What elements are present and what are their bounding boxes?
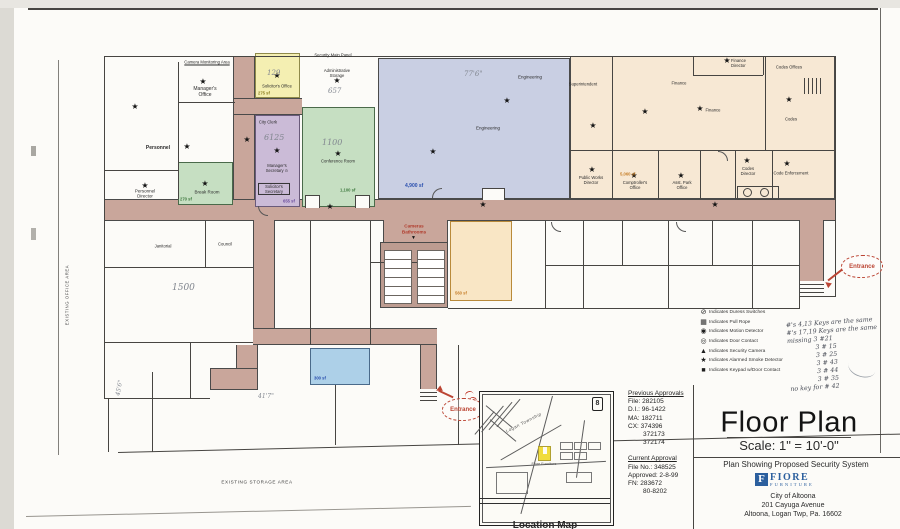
approval-line: CX: 374396 bbox=[628, 423, 684, 431]
pull-rope-icon: ▦ bbox=[698, 319, 709, 326]
area-label: 1,100 sf bbox=[340, 188, 355, 193]
area-label: 275 sf bbox=[258, 91, 270, 96]
wall bbox=[104, 170, 178, 171]
area-label: 5,060 sf bbox=[620, 172, 635, 177]
map-block bbox=[574, 452, 587, 460]
approval-line: File: 282105 bbox=[628, 398, 684, 406]
room-label-conference: Conference Room bbox=[318, 158, 358, 163]
smoke-detector-star-icon: ★ bbox=[785, 96, 792, 104]
corridor bbox=[253, 220, 275, 345]
wall bbox=[178, 62, 179, 199]
wall bbox=[152, 372, 153, 452]
scan-margin-top bbox=[0, 0, 900, 8]
smoke-detector-star-icon: ★ bbox=[641, 108, 648, 116]
corridor bbox=[236, 345, 258, 370]
room-label-managers-office: Manager's Office bbox=[189, 86, 221, 98]
wall bbox=[335, 385, 336, 445]
location-map-caption: Location Map bbox=[513, 520, 577, 529]
scan-smudge bbox=[31, 228, 36, 240]
approvals-block: Previous Approvals File: 282105 D.I.: 96… bbox=[628, 388, 684, 496]
smoke-detector-star-icon: ★ bbox=[677, 172, 684, 180]
wall bbox=[799, 296, 836, 297]
smoke-detector-star-icon: ★ bbox=[199, 78, 206, 86]
existing-office-label: EXISTING OFFICE AREA bbox=[64, 265, 69, 325]
map-block bbox=[496, 472, 528, 494]
room-label-solicitors-secretary: Solicitor's Secretary bbox=[258, 183, 290, 195]
room-label-personnel: Personnel bbox=[146, 145, 170, 151]
wall bbox=[190, 342, 191, 398]
room-label-admin-storage: Administrative Storage bbox=[317, 68, 357, 78]
address-line: 201 Cayuga Avenue bbox=[762, 502, 825, 510]
entrance-steps bbox=[800, 281, 824, 296]
route-badge: 8 bbox=[592, 397, 603, 411]
wall bbox=[765, 56, 766, 150]
wall bbox=[835, 56, 836, 297]
map-highway bbox=[480, 503, 610, 504]
legend-label: Indicates Door Contact bbox=[709, 339, 758, 344]
wall bbox=[458, 345, 459, 445]
door-arc bbox=[551, 222, 561, 232]
handwritten-key-notes: #'s 4,13 Keys are the same #'s 17,19 Key… bbox=[786, 314, 900, 394]
room-fill-finance-wing bbox=[570, 56, 835, 199]
handwritten-note: 41'7" bbox=[258, 394, 274, 400]
approval-line: Approved: 2-8-99 bbox=[628, 472, 684, 480]
room-label-public-works-director: Public Works Director bbox=[577, 175, 605, 185]
smoke-detector-star-icon: ★ bbox=[183, 143, 190, 151]
smoke-detector-star-icon: ★ bbox=[698, 357, 709, 364]
smoke-detector-star-icon: ★ bbox=[783, 160, 790, 168]
room-label-finance: Finance bbox=[672, 80, 687, 85]
down-arrow-icon: ▼ bbox=[411, 235, 416, 241]
smoke-detector-star-icon: ★ bbox=[326, 203, 333, 211]
area-label: 655 sf bbox=[283, 199, 295, 204]
legend-label: Indicates Motion Detector bbox=[709, 329, 763, 334]
scan-smudge bbox=[31, 146, 36, 156]
duress-switch-icon: ⊘ bbox=[698, 309, 709, 316]
legend-item: ⊘Indicates Duress Switches bbox=[698, 308, 828, 318]
drawing-subtitle: Plan Showing Proposed Security System bbox=[723, 460, 868, 470]
map-block bbox=[566, 472, 592, 483]
map-marker-notch bbox=[543, 447, 547, 454]
keypad-icon: ■ bbox=[698, 367, 709, 374]
address-line: Altoona, Logan Twp, Pa. 16602 bbox=[744, 511, 842, 519]
legend-label: Indicates Pull Rope bbox=[709, 320, 750, 325]
smoke-detector-star-icon: ★ bbox=[503, 97, 510, 105]
handwritten-note: 77'6" bbox=[464, 71, 483, 78]
entrance-bubble: Entrance bbox=[841, 255, 883, 278]
area-label: 300 sf bbox=[314, 376, 326, 381]
door-contact-icon: ◎ bbox=[698, 338, 709, 345]
approval-line: MA: 182711 bbox=[628, 415, 684, 423]
wall bbox=[178, 102, 235, 103]
wall bbox=[763, 56, 764, 75]
map-marker-label: Fiore Furniture bbox=[528, 462, 560, 470]
room-fill-560sf bbox=[450, 221, 512, 301]
entrance-label: Entrance bbox=[849, 264, 875, 270]
smoke-detector-star-icon: ★ bbox=[723, 57, 730, 65]
township-label: Logan Township bbox=[505, 411, 542, 433]
entrance-bubble: Entrance bbox=[442, 398, 484, 421]
bathroom-stalls bbox=[384, 250, 412, 304]
map-marker bbox=[538, 446, 551, 461]
map-block bbox=[574, 442, 587, 450]
room-label-finance: Finance bbox=[706, 107, 721, 112]
logo-word: FURNITURE bbox=[770, 482, 814, 487]
room-label-janitorial: Janitorial bbox=[155, 243, 172, 248]
door-arc bbox=[676, 222, 686, 232]
room-label-finance-director: Finance Director bbox=[731, 58, 757, 68]
room-label-codes-director: Codes Director bbox=[735, 166, 761, 176]
wall bbox=[612, 56, 613, 199]
wall bbox=[310, 221, 311, 345]
smoke-detector-star-icon: ★ bbox=[696, 105, 703, 113]
handwritten-note: 6125 bbox=[264, 134, 284, 142]
wall bbox=[693, 56, 694, 75]
room-label-personnel-director: Personnel Director bbox=[128, 189, 162, 200]
wall bbox=[104, 342, 253, 343]
room-label-comptrollers-office: Comptroller's Office bbox=[620, 180, 650, 190]
fiore-furniture-logo: F FIORE FURNITURE bbox=[755, 473, 814, 487]
motion-detector-icon: ◉ bbox=[698, 328, 709, 335]
map-block bbox=[560, 442, 573, 450]
room-label-break-room: Break Room bbox=[194, 189, 219, 194]
existing-storage-label: EXISTING STORAGE AREA bbox=[221, 479, 292, 485]
wall bbox=[370, 221, 371, 345]
camera-monitoring-label: Camera Monitoring Area bbox=[177, 59, 237, 64]
handwritten-note: 129 bbox=[267, 70, 280, 77]
smoke-detector-star-icon: ★ bbox=[243, 136, 250, 144]
wall bbox=[104, 398, 210, 399]
room-label-codes: Codes bbox=[785, 116, 797, 121]
sink bbox=[760, 188, 769, 197]
corridor-exit bbox=[420, 345, 437, 389]
legend-label: Indicates Duress Switches bbox=[709, 310, 765, 315]
wall bbox=[108, 398, 109, 452]
wall bbox=[700, 150, 701, 199]
legend-label: Indicates Keypad w/Door Contact bbox=[709, 368, 780, 373]
previous-approvals-heading: Previous Approvals bbox=[628, 390, 684, 398]
smoke-detector-star-icon: ★ bbox=[588, 166, 595, 174]
smoke-detector-star-icon: ★ bbox=[589, 122, 596, 130]
wall bbox=[799, 296, 800, 308]
approval-line: D.I.: 96-1422 bbox=[628, 406, 684, 414]
bathroom-stalls bbox=[417, 250, 445, 304]
logo-f-icon: F bbox=[755, 473, 768, 486]
wall bbox=[570, 150, 835, 151]
approval-line: FN: 283672 bbox=[628, 480, 684, 488]
smoke-detector-star-icon: ★ bbox=[131, 103, 138, 111]
wall bbox=[712, 221, 713, 265]
area-label: 4,900 sf bbox=[405, 183, 423, 189]
stairs bbox=[801, 78, 823, 94]
wall bbox=[658, 150, 659, 199]
room-label-superintendent: Superintendent bbox=[569, 81, 597, 86]
logo-name: FIORE bbox=[770, 473, 814, 482]
smoke-detector-star-icon: ★ bbox=[201, 180, 208, 188]
room-label-codes-offices: Codes Offices bbox=[776, 64, 802, 69]
corridor bbox=[253, 328, 437, 345]
wall bbox=[104, 267, 253, 268]
smoke-detector-star-icon: ★ bbox=[273, 147, 280, 155]
handwritten-note: 1500 bbox=[172, 284, 195, 293]
smoke-detector-star-icon: ★ bbox=[429, 148, 436, 156]
room-label-solicitors-office: Solicitor's Office bbox=[262, 83, 292, 88]
room-label-council: Council bbox=[218, 241, 232, 246]
wall-notch bbox=[305, 195, 320, 208]
map-block bbox=[560, 452, 573, 460]
area-label: 560 sf bbox=[455, 291, 467, 296]
cameras-bathrooms-label: Cameras Bathrooms bbox=[397, 224, 431, 235]
room-label-engineering: Engineering bbox=[518, 74, 542, 79]
corridor bbox=[210, 368, 258, 390]
scanned-floor-plan-sheet: ★ ★ ★ ★ ★ ★ ★ ★ ★ ★ ★ ★ ★ ★ ★ ★ ★ ★ ★ ★ … bbox=[0, 0, 900, 529]
map-block bbox=[588, 442, 601, 450]
smoke-detector-star-icon: ★ bbox=[333, 77, 340, 85]
room-label-managers-secretary: Manager's Secretary ⊙ bbox=[260, 163, 294, 173]
drawing-title: Floor Plan bbox=[720, 406, 857, 441]
smoke-detector-star-icon: ★ bbox=[711, 201, 718, 209]
approval-line: 80-8202 bbox=[628, 488, 684, 496]
drawing-scale: Scale: 1" = 10'-0" bbox=[739, 438, 839, 454]
wall bbox=[205, 221, 206, 267]
location-map: Logan Township Fiore Furniture 8 bbox=[479, 391, 614, 526]
address-line: City of Altoona bbox=[770, 493, 815, 501]
map-highway bbox=[480, 498, 610, 499]
legend-label: Indicates Alarmed Smoke Detector bbox=[709, 358, 783, 363]
sheet-edge-line bbox=[26, 506, 471, 517]
wall bbox=[104, 56, 105, 398]
area-label: 270 sf bbox=[180, 197, 192, 202]
room-label-city-clerk: City Clerk bbox=[259, 119, 277, 124]
room-label-code-enforcement: Code Enforcement bbox=[771, 170, 811, 175]
wall-notch bbox=[355, 195, 370, 208]
wall bbox=[693, 75, 763, 76]
wall-notch bbox=[482, 188, 505, 200]
smoke-detector-star-icon: ★ bbox=[334, 150, 341, 158]
security-panel-label: Security Main Panel bbox=[303, 52, 363, 57]
property-line bbox=[58, 60, 59, 455]
corridor bbox=[234, 98, 302, 115]
sink bbox=[743, 188, 752, 197]
handwritten-note: 1100 bbox=[322, 139, 342, 147]
security-camera-icon: ▲ bbox=[698, 348, 709, 355]
current-approval-heading: Current Approval bbox=[628, 455, 684, 463]
approval-line: File No.: 348525 bbox=[628, 464, 684, 472]
smoke-detector-star-icon: ★ bbox=[479, 201, 486, 209]
approval-line: 372174 bbox=[628, 439, 684, 447]
approval-line: 372173 bbox=[628, 431, 684, 439]
handwritten-note: 657 bbox=[328, 88, 341, 95]
scan-margin-left bbox=[0, 8, 14, 529]
smoke-detector-star-icon: ★ bbox=[743, 157, 750, 165]
room-label-asst-park-office: Asst. Park Office bbox=[669, 180, 695, 190]
handwritten-note: 45'6" bbox=[116, 380, 125, 397]
room-label-engineering: Engineering bbox=[476, 125, 500, 130]
sheet-border-top bbox=[28, 8, 878, 10]
legend-label: Indicates Security Camera bbox=[709, 349, 765, 354]
entrance-label: Entrance bbox=[450, 407, 476, 413]
title-block-rule bbox=[693, 457, 900, 458]
wall bbox=[545, 265, 800, 266]
wall bbox=[622, 221, 623, 265]
